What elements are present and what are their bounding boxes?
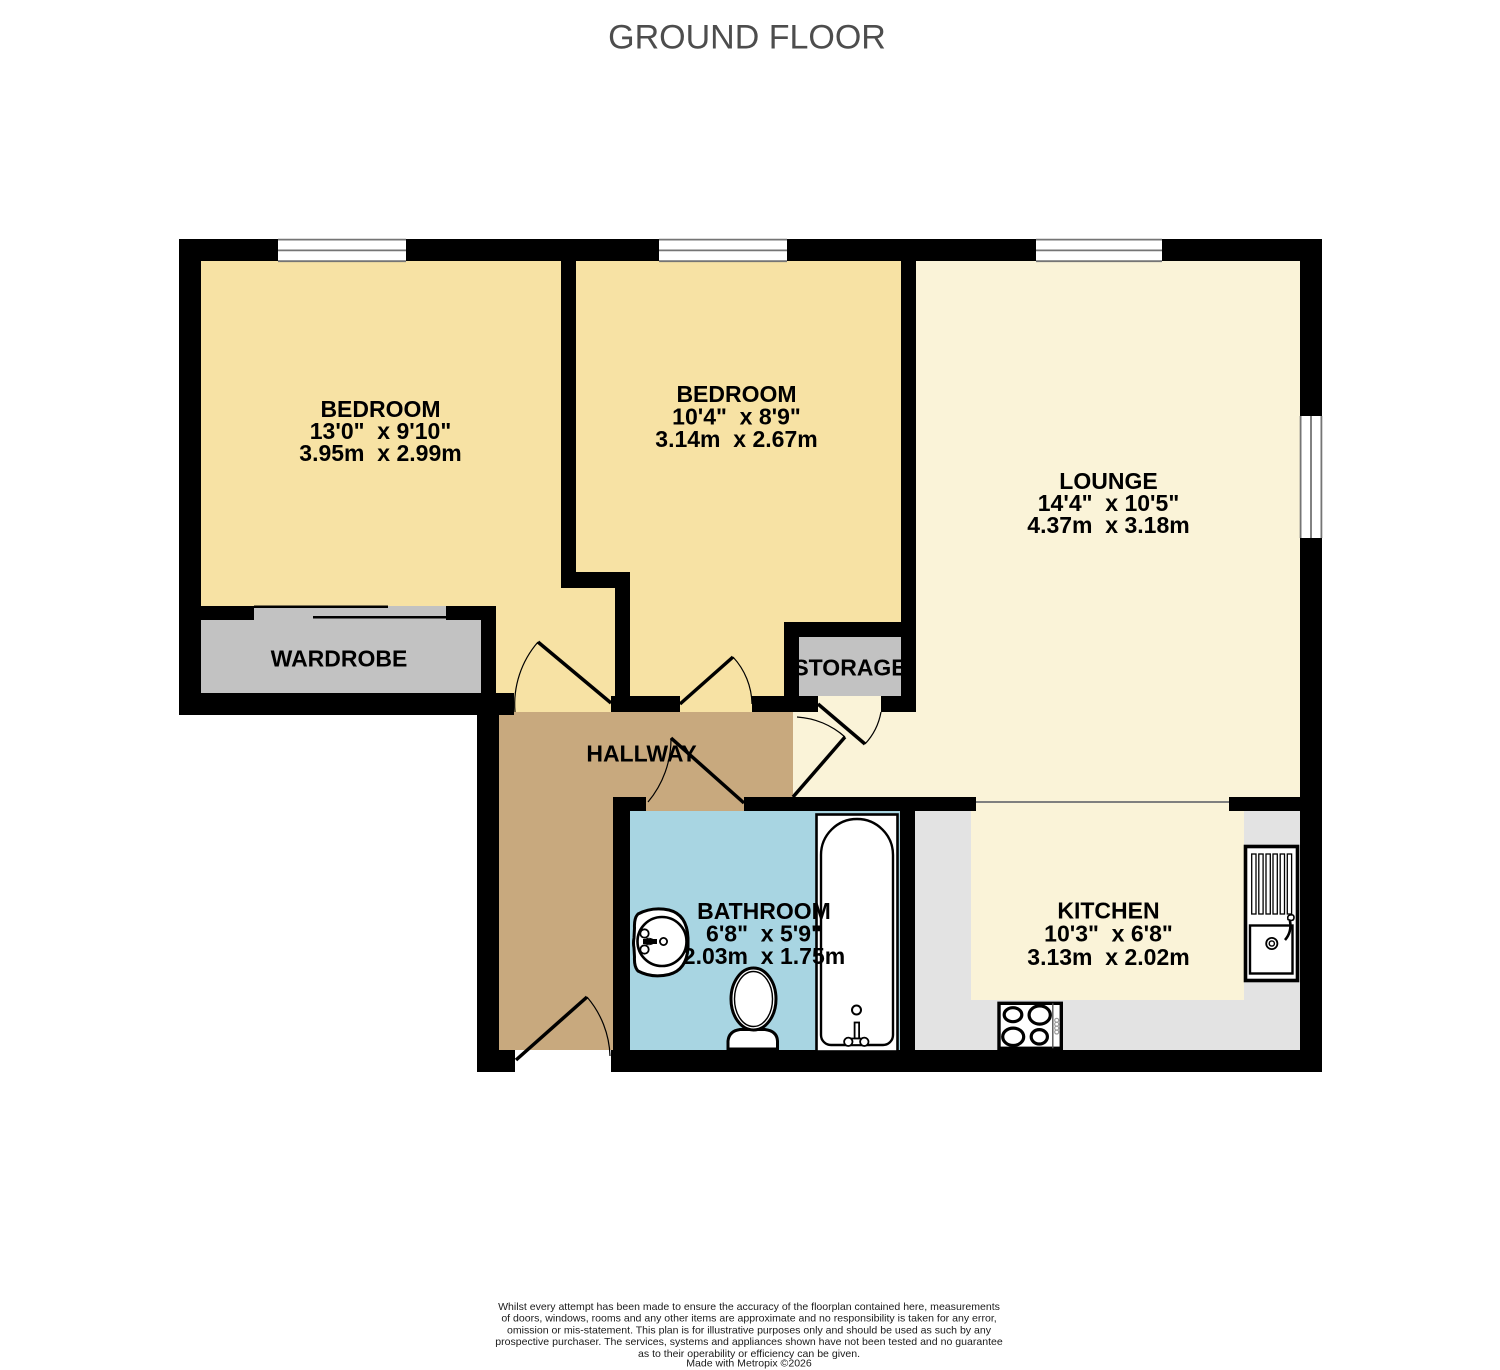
- svg-text:2.03m x 1.75m: 2.03m x 1.75m: [683, 943, 845, 969]
- svg-text:STORAGE: STORAGE: [793, 655, 906, 681]
- svg-text:4.37m x 3.18m: 4.37m x 3.18m: [1027, 512, 1189, 538]
- svg-text:3.95m x 2.99m: 3.95m x 2.99m: [299, 440, 461, 466]
- svg-text:GROUND FLOOR: GROUND FLOOR: [608, 19, 886, 57]
- svg-text:3.13m x 2.02m: 3.13m x 2.02m: [1027, 944, 1189, 970]
- svg-text:omission or mis-statement. Thi: omission or mis-statement. This plan is …: [507, 1324, 992, 1336]
- svg-text:WARDROBE: WARDROBE: [271, 646, 408, 672]
- svg-text:of doors, windows, rooms and a: of doors, windows, rooms and any other i…: [501, 1313, 996, 1325]
- svg-text:10'3" x 6'8": 10'3" x 6'8": [1044, 921, 1173, 947]
- svg-text:prospective purchaser. The ser: prospective purchaser. The services, sys…: [495, 1336, 1003, 1348]
- svg-text:HALLWAY: HALLWAY: [586, 741, 696, 767]
- svg-text:Made with Metropix ©2026: Made with Metropix ©2026: [686, 1358, 812, 1370]
- svg-text:3.14m x 2.67m: 3.14m x 2.67m: [655, 426, 817, 452]
- svg-text:Whilst every attempt has been: Whilst every attempt has been made to en…: [498, 1301, 1000, 1313]
